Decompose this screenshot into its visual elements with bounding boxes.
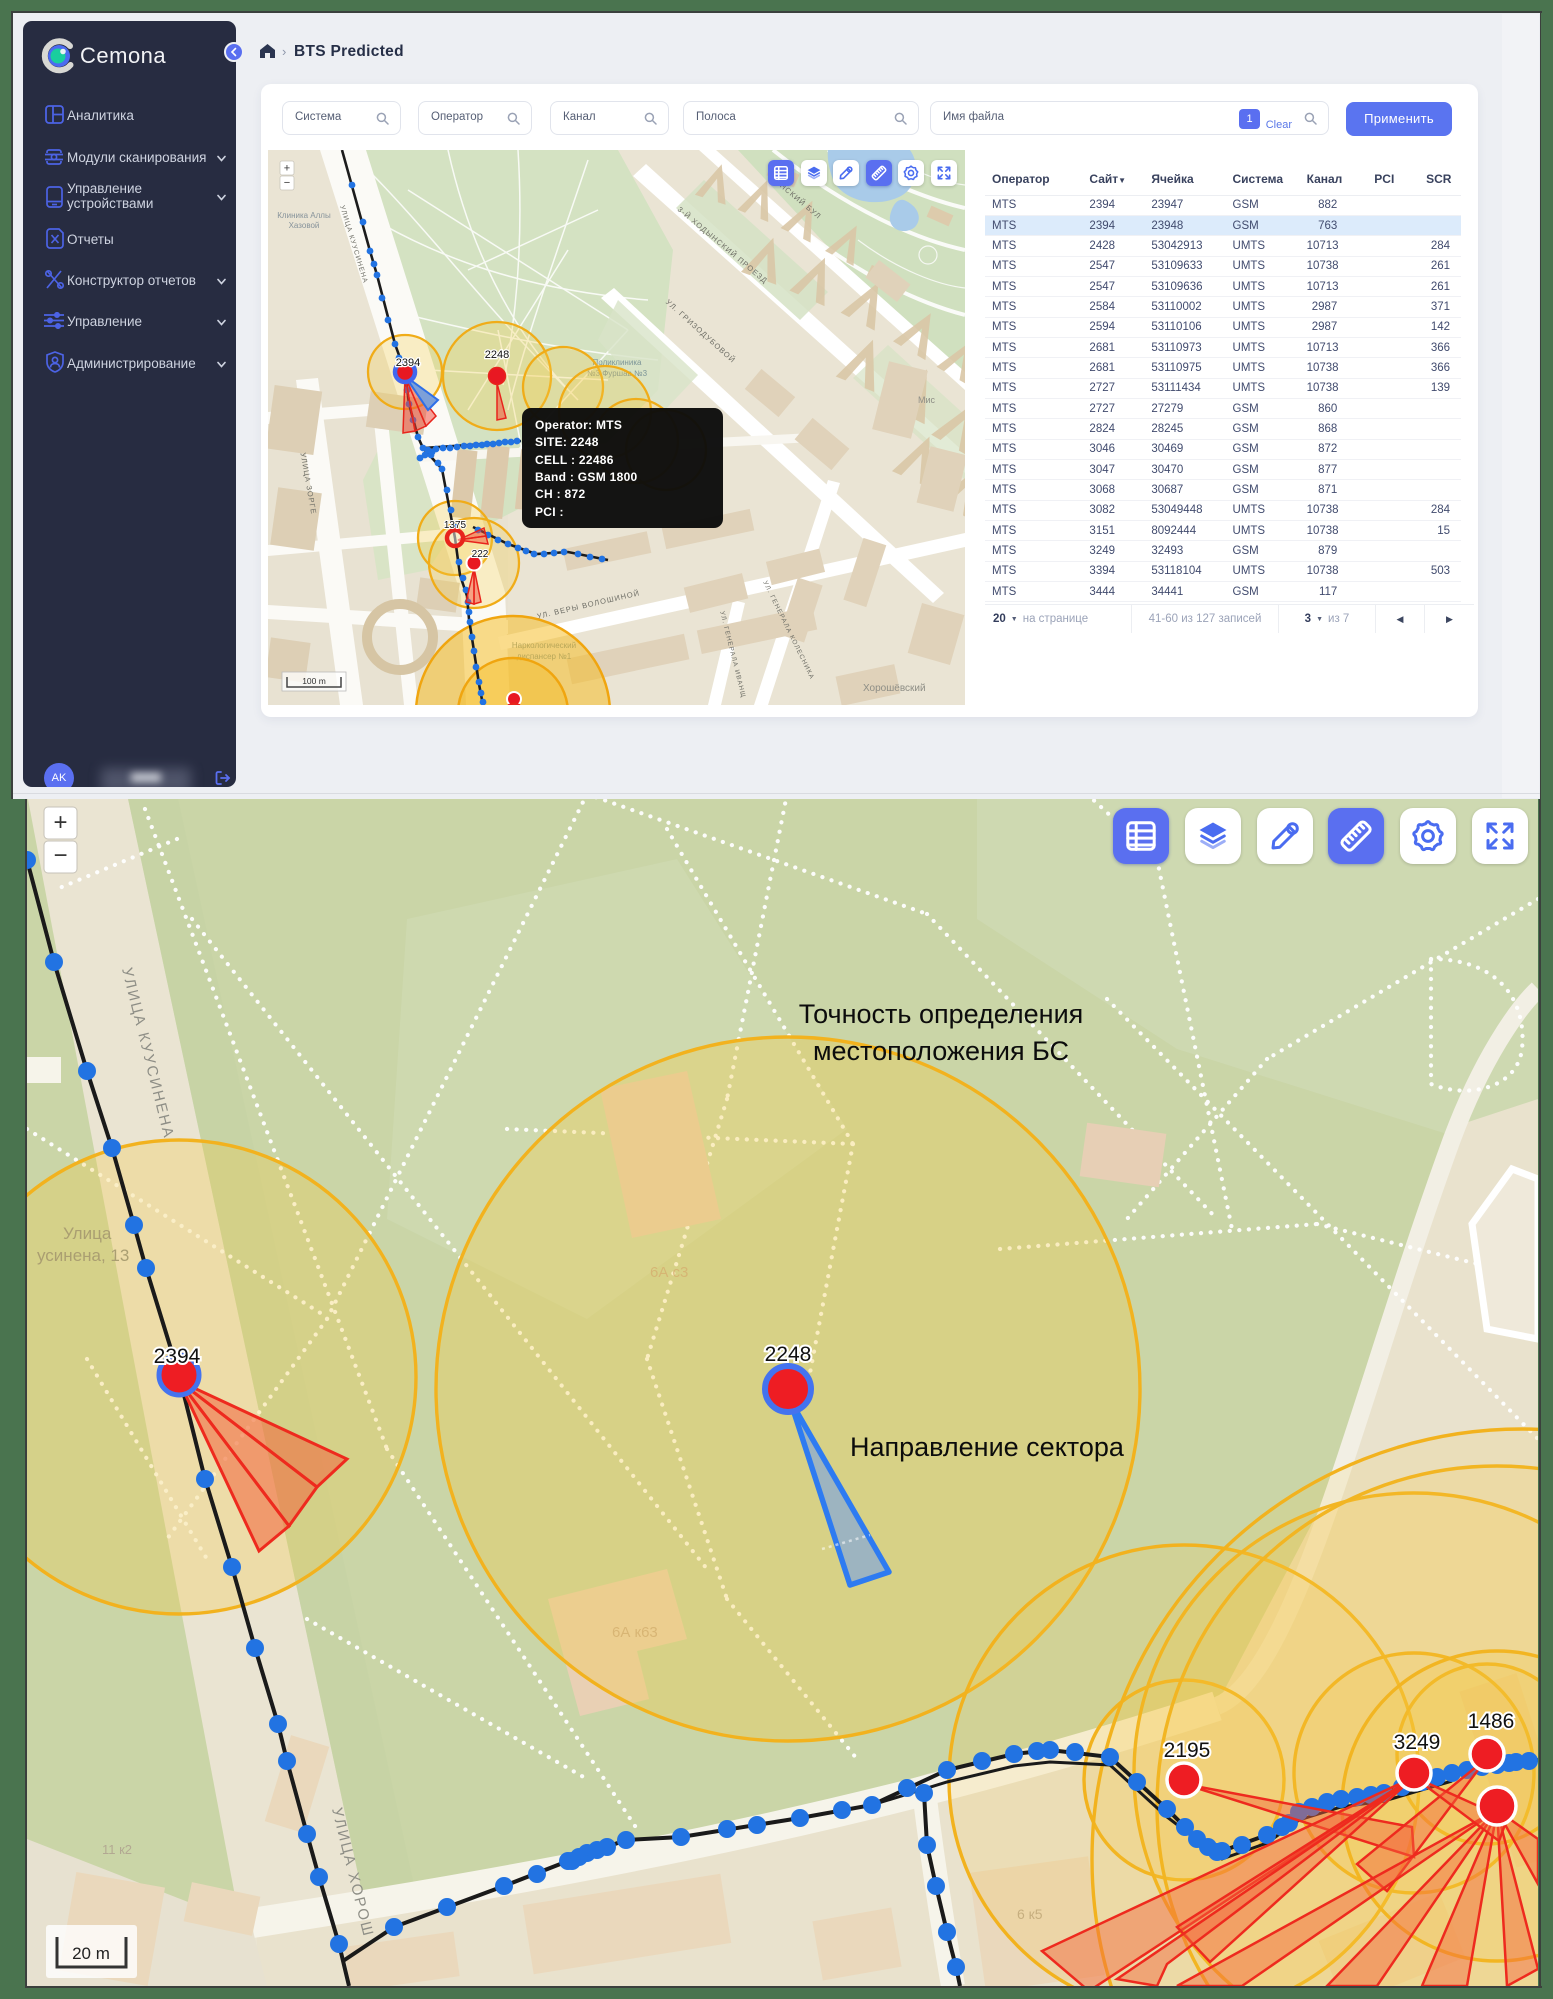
svg-text:+: + [284, 163, 290, 175]
svg-text:222: 222 [472, 549, 489, 560]
svg-text:Направление сектора: Направление сектора [850, 1432, 1125, 1462]
svg-text:2195: 2195 [1164, 1739, 1211, 1762]
svg-text:3249: 3249 [1394, 1731, 1441, 1754]
svg-text:Клиника Аллы: Клиника Аллы [277, 211, 331, 220]
svg-text:Operator: MTS: Operator: MTS [535, 418, 622, 432]
svg-text:PCI :: PCI : [535, 505, 564, 519]
svg-text:2394: 2394 [154, 1345, 201, 1368]
svg-text:2248: 2248 [485, 349, 509, 361]
svg-text:11 к2: 11 к2 [102, 1842, 132, 1857]
svg-text:SITE: 2248: SITE: 2248 [535, 435, 599, 449]
svg-text:местоположения БС: местоположения БС [813, 1036, 1069, 1066]
svg-text:20 m: 20 m [72, 1944, 110, 1963]
svg-text:2394: 2394 [396, 357, 420, 369]
svg-text:Точность определения: Точность определения [799, 999, 1084, 1029]
svg-text:Band : GSM 1800: Band : GSM 1800 [535, 470, 638, 484]
svg-text:Мис: Мис [918, 395, 936, 405]
svg-text:1486: 1486 [1468, 1710, 1515, 1733]
svg-text:Хазовой: Хазовой [289, 221, 320, 230]
svg-text:−: − [53, 842, 67, 869]
svg-text:100 m: 100 m [302, 676, 326, 686]
svg-text:+: + [53, 809, 67, 836]
svg-text:2248: 2248 [765, 1343, 812, 1366]
svg-text:Хорошёвский: Хорошёвский [863, 683, 926, 694]
svg-text:1375: 1375 [444, 520, 467, 531]
svg-text:CH : 872: CH : 872 [535, 487, 585, 501]
svg-text:CELL : 22486: CELL : 22486 [535, 453, 614, 467]
svg-text:−: − [284, 177, 290, 189]
